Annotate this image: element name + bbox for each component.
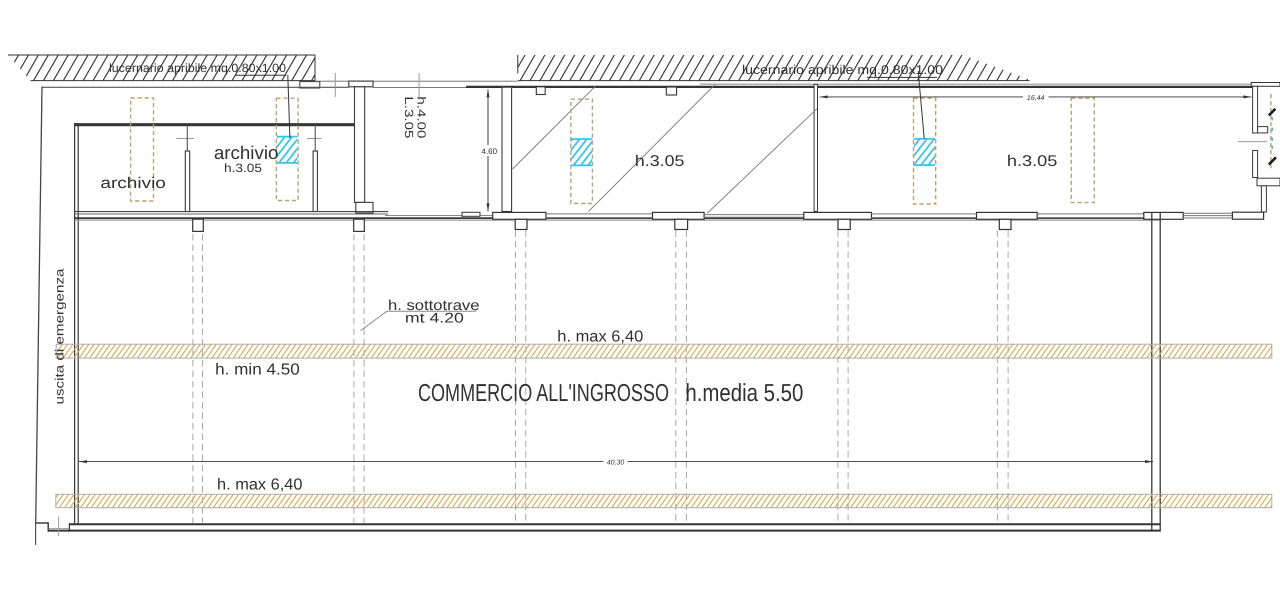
svg-text:lucernario apribile mq.0.80x: lucernario apribile mq.0.80x1.00: [742, 62, 943, 77]
svg-text:4.60: 4.60: [482, 147, 498, 156]
svg-text:h.media 5.50: h.media 5.50: [685, 380, 803, 407]
svg-text:COMMERCIO ALL'INGROSSO: COMMERCIO ALL'INGROSSO: [418, 380, 669, 407]
svg-text:h. max 6,40: h. max 6,40: [217, 477, 303, 494]
svg-text:h. min 4.50: h. min 4.50: [215, 361, 300, 378]
svg-text:h.3.05: h.3.05: [635, 153, 685, 170]
svg-text:40,30: 40,30: [607, 460, 625, 467]
svg-text:archivio: archivio: [214, 142, 279, 163]
svg-text:h. max 6,40: h. max 6,40: [557, 328, 643, 345]
svg-text:lucernario apribile mq.0.80x1.: lucernario apribile mq.0.80x1.00: [109, 61, 286, 75]
svg-text:h.3.05: h.3.05: [224, 161, 262, 175]
svg-text:h.3.05: h.3.05: [1007, 153, 1058, 170]
svg-text:L.3.05: L.3.05: [402, 96, 416, 139]
svg-text:16,44: 16,44: [1027, 95, 1045, 102]
svg-text:archivio: archivio: [100, 175, 165, 192]
svg-text:uscita di emergenza: uscita di emergenza: [53, 268, 67, 404]
